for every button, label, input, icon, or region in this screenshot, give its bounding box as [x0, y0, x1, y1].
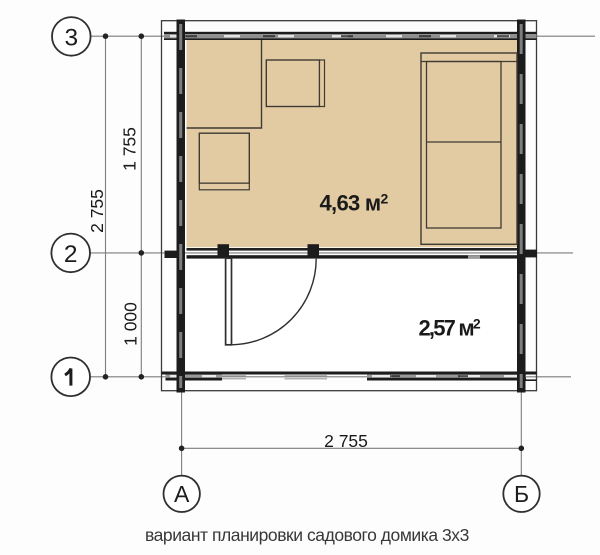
svg-text:2,57 м2: 2,57 м2: [419, 315, 481, 340]
svg-text:А: А: [174, 481, 190, 507]
svg-text:вариант планировки садового до: вариант планировки садового домика 3х3: [145, 525, 469, 545]
svg-text:2: 2: [64, 241, 78, 268]
svg-text:Б: Б: [514, 481, 529, 507]
svg-text:1 000: 1 000: [121, 302, 141, 346]
svg-text:4,63 м2: 4,63 м2: [320, 191, 389, 216]
svg-text:3: 3: [64, 24, 78, 51]
svg-text:2 755: 2 755: [324, 431, 368, 451]
svg-text:1 755: 1 755: [120, 127, 140, 171]
svg-text:2 755: 2 755: [87, 189, 107, 233]
